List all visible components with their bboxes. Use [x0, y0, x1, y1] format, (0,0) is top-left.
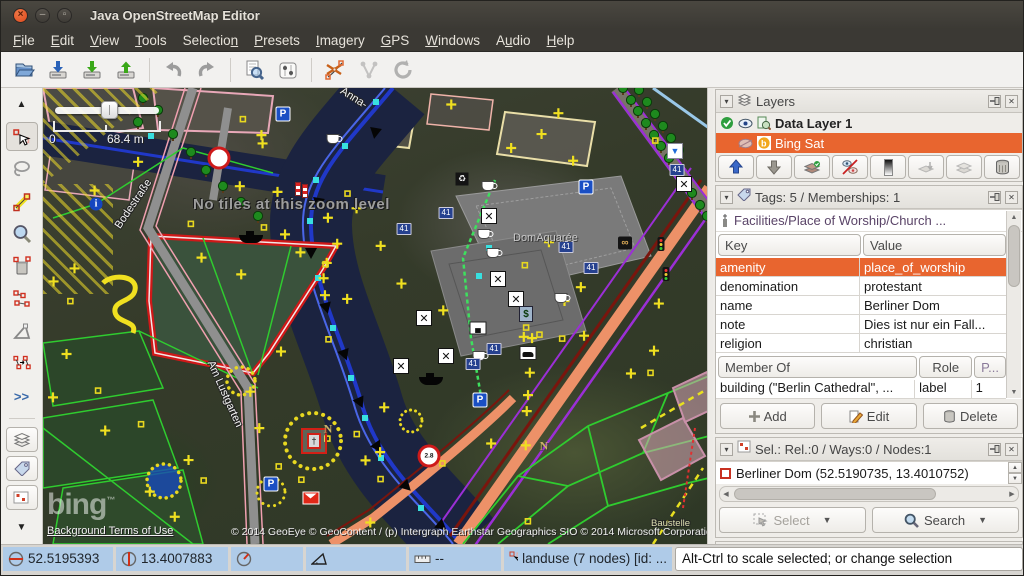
zoom-slider-handle[interactable] — [101, 101, 118, 119]
menu-view[interactable]: View — [82, 31, 127, 50]
window-controls: × – ▫ — [13, 8, 72, 23]
collapse-icon[interactable]: ▾ — [720, 95, 733, 108]
data-layer-icon — [757, 116, 771, 130]
heading-field — [231, 547, 303, 571]
menu-tools[interactable]: Tools — [127, 31, 175, 50]
toolbar-separator — [149, 58, 150, 82]
selection-panel-header: ▾ Sel.: Rel.:0 / Ways:0 / Nodes:1 ✕ — [716, 438, 1022, 461]
main-toolbar — [1, 51, 1024, 88]
redo-button[interactable] — [190, 55, 224, 85]
node-icon — [720, 468, 731, 479]
tags-panel-header: ▾ Tags: 5 / Memberships: 1 ✕ — [716, 186, 1022, 209]
status-help-text: Alt-Ctrl to scale selected; or change se… — [675, 547, 1023, 571]
menu-imagery[interactable]: Imagery — [308, 31, 373, 50]
stick-icon[interactable] — [988, 443, 1001, 456]
plus-icon — [749, 411, 760, 422]
selection-icon — [737, 440, 751, 458]
zoom-tool-button[interactable] — [6, 220, 38, 248]
layers-panel-toggle-button[interactable] — [6, 427, 38, 452]
extrude-tool-button[interactable] — [6, 317, 38, 345]
distance-field: -- — [409, 547, 501, 571]
duplicate-layer-button[interactable] — [946, 155, 982, 179]
tags-panel-toggle-button[interactable] — [6, 456, 38, 481]
josm-window: × – ▫ Java OpenStreetMap Editor FileEdit… — [0, 0, 1024, 576]
tool-separator — [9, 418, 35, 419]
layers-panel-title: Layers — [756, 94, 984, 109]
delete-tool-button[interactable] — [6, 252, 38, 280]
bing-layer-icon: b — [757, 136, 771, 150]
tags-table: Facilities/Place of Worship/Church ... K… — [716, 209, 1022, 399]
status-bar: 52.5195393 13.4007883 -- landuse (7 node… — [1, 544, 1024, 572]
map-canvas[interactable]: PPPP✕✕✕✕✕✕✕41414141414141i2.8∞▄$▼♻†NN 0 … — [43, 88, 707, 544]
toolbar-separator — [311, 58, 312, 82]
menu-presets[interactable]: Presets — [246, 31, 308, 50]
selection-panel: ▾ Sel.: Rel.:0 / Ways:0 / Nodes:1 ✕ Berl… — [715, 437, 1023, 538]
selection-list-item[interactable]: Berliner Dom (52.5190735, 13.4010752) — [716, 462, 1007, 484]
trash-icon — [943, 410, 956, 423]
selection-panel-toggle-button[interactable] — [6, 485, 38, 510]
edit-toolbar: ▲>>▼ — [1, 88, 43, 544]
menu-help[interactable]: Help — [539, 31, 583, 50]
activate-layer-button[interactable] — [794, 155, 830, 179]
unglue-tool-button[interactable] — [6, 285, 38, 313]
collapse-icon[interactable]: ▾ — [720, 443, 733, 456]
layers-icon — [737, 92, 752, 111]
position-header[interactable]: P... — [974, 356, 1006, 378]
selection-spinner[interactable]: ▲▼ — [1008, 462, 1022, 484]
combine-way-button[interactable] — [352, 55, 386, 85]
scale-max-label: 68.4 m — [107, 132, 144, 146]
membership-column-headers: Member Of Role P... — [716, 353, 1022, 380]
pencil-icon — [849, 409, 863, 423]
scroll-up-arrow[interactable]: ▲ — [1007, 211, 1021, 223]
tag-row[interactable]: noteDies ist nur ein Fall... — [716, 315, 1006, 334]
tag-actions: Add Edit Delete — [716, 399, 1022, 433]
parallel-tool-button[interactable] — [6, 349, 38, 377]
ruler-icon — [414, 553, 431, 565]
layer-opacity-button[interactable] — [870, 155, 906, 179]
angle-icon — [311, 551, 328, 566]
selection-list: Berliner Dom (52.5190735, 13.4010752) ▲▼ — [716, 461, 1022, 484]
menu-audio[interactable]: Audio — [488, 31, 539, 50]
tag-row[interactable]: amenityplace_of_worship — [716, 258, 1006, 277]
close-icon[interactable]: ✕ — [1005, 95, 1018, 108]
latitude-icon — [8, 551, 24, 567]
tag-icon — [737, 188, 751, 206]
map-vector-layer — [43, 88, 707, 544]
delete-layer-button[interactable] — [984, 155, 1020, 179]
add-tag-button[interactable]: Add — [720, 403, 815, 429]
layers-panel-header: ▾ Layers ✕ — [716, 90, 1022, 113]
layers-toolbar — [716, 153, 1022, 181]
selection-hscrollbar[interactable]: ◀ ▶ — [719, 486, 1019, 502]
lasso-tool-button[interactable] — [6, 155, 38, 183]
menu-edit[interactable]: Edit — [43, 31, 82, 50]
tag-row[interactable]: nameBerliner Dom — [716, 296, 1006, 315]
title-bar: × – ▫ Java OpenStreetMap Editor — [1, 1, 1024, 29]
preset-row[interactable]: Facilities/Place of Worship/Church ... — [716, 210, 1022, 232]
tags-scrollbar[interactable]: ▲ ▼ — [1006, 211, 1021, 398]
side-panels: ▾ Layers ✕ Data Layer 1 b Bing Sat — [713, 88, 1024, 544]
layers-panel: ▾ Layers ✕ Data Layer 1 b Bing Sat — [715, 89, 1023, 182]
layer-name: Data Layer 1 — [775, 116, 852, 131]
svg-text:b: b — [761, 139, 767, 149]
longitude-field: 13.4007883 — [116, 547, 228, 571]
search-icon — [904, 513, 919, 528]
select-icon — [753, 513, 768, 527]
show-hide-layer-button[interactable] — [832, 155, 868, 179]
tags-panel-title: Tags: 5 / Memberships: 1 — [755, 190, 984, 205]
latitude-field: 52.5195393 — [3, 547, 113, 571]
edit-tag-button[interactable]: Edit — [821, 403, 916, 429]
key-column-header[interactable]: Key — [718, 234, 861, 256]
upload-button[interactable] — [109, 55, 143, 85]
visible-eye-icon — [738, 118, 753, 129]
tags-panel: ▾ Tags: 5 / Memberships: 1 ✕ Facilities/… — [715, 185, 1023, 434]
move-tool-button[interactable] — [6, 122, 38, 151]
collapse-icon[interactable]: ▾ — [720, 191, 733, 204]
merge-layer-button[interactable] — [908, 155, 944, 179]
hovered-object-field: landuse (7 nodes) [id: ... — [504, 547, 672, 571]
search-objects-button[interactable] — [237, 55, 271, 85]
menu-windows[interactable]: Windows — [417, 31, 488, 50]
close-icon[interactable]: ✕ — [1005, 191, 1018, 204]
tag-column-headers: Key Value — [716, 232, 1022, 258]
role-header[interactable]: Role — [919, 356, 972, 378]
save-button[interactable] — [41, 55, 75, 85]
window-bottom-edge — [1, 572, 1024, 576]
tag-row[interactable]: religionchristian — [716, 334, 1006, 353]
active-check-icon — [720, 116, 734, 130]
menu-selection[interactable]: Selection — [175, 31, 247, 50]
church-icon — [720, 214, 730, 227]
search-button[interactable]: Search▼ — [872, 507, 1019, 533]
selection-actions: Select▼ Search▼ — [716, 504, 1022, 537]
longitude-icon — [121, 551, 137, 567]
hidden-eye-icon — [738, 138, 753, 149]
scale-min-label: 0 — [49, 132, 56, 146]
scroll-down-arrow[interactable]: ▼ — [1007, 386, 1021, 398]
scroll-right-arrow[interactable]: ▶ — [1006, 490, 1018, 498]
menu-gps[interactable]: GPS — [373, 31, 418, 50]
maximize-button[interactable]: ▫ — [57, 8, 72, 23]
close-button[interactable]: × — [13, 8, 28, 23]
move-layer-up-button[interactable] — [718, 155, 754, 179]
heading-icon — [236, 551, 252, 567]
open-button[interactable] — [7, 55, 41, 85]
minimize-button[interactable]: – — [35, 8, 50, 23]
layer-row-data[interactable]: Data Layer 1 — [716, 113, 1022, 133]
draw-tool-button[interactable] — [6, 187, 38, 215]
object-cursor-icon — [509, 551, 518, 566]
scrollbar-thumb[interactable] — [1008, 225, 1020, 287]
select-button[interactable]: Select▼ — [719, 507, 866, 533]
menu-bar: FileEditViewToolsSelectionPresetsImagery… — [1, 29, 1024, 51]
preferences-button[interactable] — [271, 55, 305, 85]
value-column-header[interactable]: Value — [863, 234, 1006, 256]
selection-panel-title: Sel.: Rel.:0 / Ways:0 / Nodes:1 — [755, 442, 984, 457]
close-icon[interactable]: ✕ — [1005, 443, 1018, 456]
terms-of-use-link[interactable]: Background Terms of Use — [47, 525, 173, 537]
delete-tag-button[interactable]: Delete — [923, 403, 1018, 429]
more-tools-button[interactable]: >> — [6, 382, 38, 410]
scale-bar — [53, 121, 161, 132]
split-way-button[interactable] — [318, 55, 352, 85]
toolbar-separator — [230, 58, 231, 82]
scroll-left-arrow[interactable]: ◀ — [720, 490, 732, 498]
window-title: Java OpenStreetMap Editor — [90, 8, 260, 23]
hscrollbar-thumb[interactable] — [734, 488, 936, 500]
download-button[interactable] — [75, 55, 109, 85]
undo-button[interactable] — [156, 55, 190, 85]
member-of-header[interactable]: Member Of — [718, 356, 917, 378]
menu-file[interactable]: File — [5, 31, 43, 50]
stick-icon[interactable] — [988, 191, 1001, 204]
membership-row[interactable]: building ("Berlin Cathedral", ... label … — [716, 380, 1006, 399]
stick-icon[interactable] — [988, 95, 1001, 108]
scroll-up-tool-button[interactable]: ▲ — [6, 90, 38, 118]
layer-name: Bing Sat — [775, 136, 824, 151]
tag-row[interactable]: denominationprotestant — [716, 277, 1006, 296]
layer-row-bing[interactable]: b Bing Sat — [716, 133, 1022, 153]
scroll-down-tool-button[interactable]: ▼ — [6, 514, 38, 542]
angle-field — [306, 547, 406, 571]
move-layer-down-button[interactable] — [756, 155, 792, 179]
refresh-button[interactable] — [386, 55, 420, 85]
